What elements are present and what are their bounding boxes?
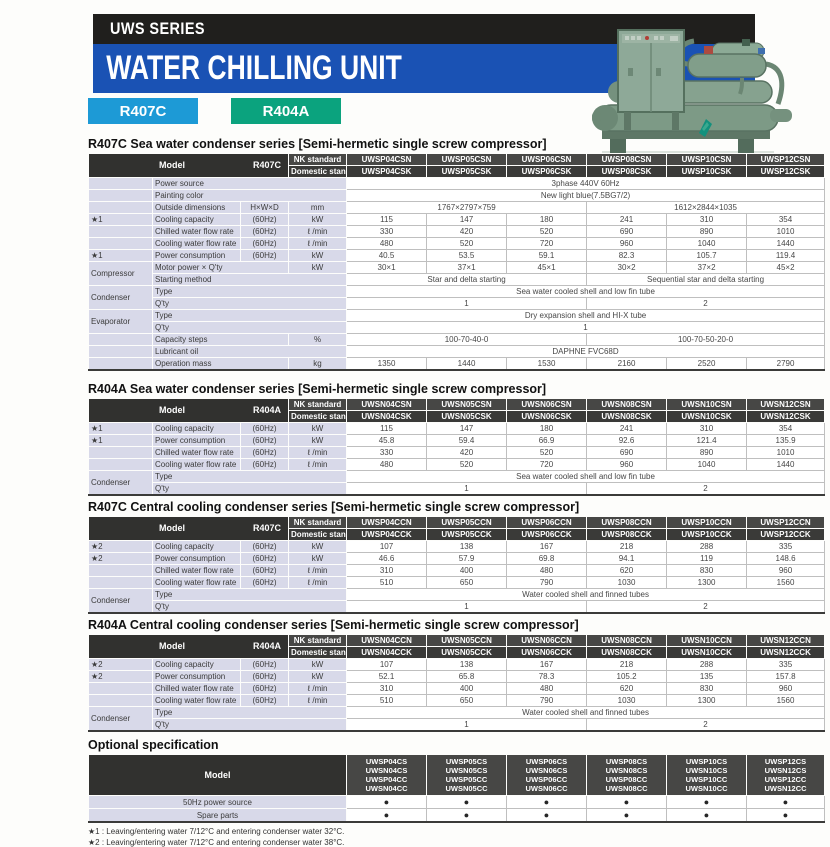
row-sub-cell: (60Hz) <box>241 238 289 250</box>
data-cell: 1440 <box>427 358 507 371</box>
model-label: Model <box>91 642 253 651</box>
data-cell: 1040 <box>667 459 747 471</box>
data-cell: 1560 <box>747 577 825 589</box>
footnotes: ★1 : Leaving/entering water 7/12°C and e… <box>88 827 824 847</box>
model-name-cell: UWSP10CSN <box>667 154 747 166</box>
row-unit-cell: ℓ /min <box>289 565 347 577</box>
model-code: R404A <box>253 642 286 651</box>
model-name-cell: UWSP04CCN <box>347 517 427 529</box>
dot-icon: ● <box>587 796 667 809</box>
row-sub-cell: (60Hz) <box>241 435 289 447</box>
data-cell: 480 <box>507 565 587 577</box>
row-group-cell <box>89 695 153 707</box>
data-cell: Sequential star and delta starting <box>587 274 825 286</box>
model-name-cell: UWSN08CCN <box>587 635 667 647</box>
model-name-cell: UWSP08CCK <box>587 529 667 541</box>
model-label: Model <box>91 524 253 533</box>
row-label-cell: Type <box>153 707 347 719</box>
model-name-cell: UWSP04CSN <box>347 154 427 166</box>
model-code: R404A <box>253 406 286 415</box>
optional-model-name: UWSN08CC <box>587 784 666 793</box>
data-cell: 690 <box>587 447 667 459</box>
data-cell: 180 <box>507 423 587 435</box>
model-name-cell: UWSP12CCN <box>747 517 825 529</box>
row-unit-cell: ℓ /min <box>289 695 347 707</box>
row-group-cell <box>89 565 153 577</box>
model-label: Model <box>91 161 253 170</box>
data-cell: 288 <box>667 541 747 553</box>
row-sub-cell: (60Hz) <box>241 565 289 577</box>
data-cell: 620 <box>587 565 667 577</box>
dot-icon: ● <box>667 796 747 809</box>
data-cell: 69.8 <box>507 553 587 565</box>
optional-model-name: UWSP06CC <box>507 775 586 784</box>
data-cell: 420 <box>427 447 507 459</box>
model-name-cell: UWSN12CCK <box>747 647 825 659</box>
row-label-cell: Q'ty <box>153 601 347 614</box>
model-header-cell: ModelR407C <box>89 154 289 178</box>
model-name-cell: UWSN06CCK <box>507 647 587 659</box>
dot-icon: ● <box>587 809 667 823</box>
spec-content: R407C Sea water condenser series [Semi-h… <box>88 138 824 847</box>
data-cell: 510 <box>347 695 427 707</box>
row-sub-cell: (60Hz) <box>241 577 289 589</box>
row-label-cell: Starting method <box>153 274 347 286</box>
model-name-cell: UWSN04CSK <box>347 411 427 423</box>
model-name-cell: UWSP06CCK <box>507 529 587 541</box>
nk-standard-cell: NK standard <box>289 399 347 411</box>
data-cell: 147 <box>427 214 507 226</box>
data-cell: 218 <box>587 659 667 671</box>
row-group-cell: Compressor <box>89 262 153 286</box>
optional-heading: Optional specification <box>88 739 824 752</box>
data-cell: 115 <box>347 214 427 226</box>
data-cell: Water cooled shell and finned tubes <box>347 589 825 601</box>
row-unit-cell: ℓ /min <box>289 577 347 589</box>
model-name-cell: UWSP04CSK <box>347 166 427 178</box>
model-name-cell: UWSN08CSN <box>587 399 667 411</box>
optional-model-name: UWSP12CC <box>747 775 824 784</box>
optional-row-label: 50Hz power source <box>89 796 347 809</box>
data-cell: 241 <box>587 214 667 226</box>
model-name-cell: UWSP06CCN <box>507 517 587 529</box>
teal-corner-mark <box>697 117 713 137</box>
optional-model-name: UWSN12CC <box>747 784 824 793</box>
row-sub-cell: (60Hz) <box>241 553 289 565</box>
data-cell: 37×2 <box>667 262 747 274</box>
data-cell: 335 <box>747 659 825 671</box>
model-name-cell: UWSN04CCK <box>347 647 427 659</box>
data-cell: 420 <box>427 226 507 238</box>
data-cell: 30×1 <box>347 262 427 274</box>
refrigerant-badge-R407C: R407C <box>88 98 198 124</box>
data-cell: 119 <box>667 553 747 565</box>
row-unit-cell: kW <box>289 262 347 274</box>
row-group-cell: ★2 <box>89 553 153 565</box>
model-name-cell: UWSP05CCN <box>427 517 507 529</box>
optional-row-label: Spare parts <box>89 809 347 823</box>
data-cell: 1440 <box>747 459 825 471</box>
model-code: R407C <box>253 524 286 533</box>
section-title: R404A Central cooling condenser series [… <box>88 619 824 632</box>
model-name-cell: UWSP08CSK <box>587 166 667 178</box>
row-sub-cell: (60Hz) <box>241 447 289 459</box>
dot-icon: ● <box>427 809 507 823</box>
series-label: UWS SERIES <box>93 19 205 39</box>
row-unit-cell: kW <box>289 423 347 435</box>
data-cell: 135 <box>667 671 747 683</box>
optional-model-name: UWSN05CC <box>427 784 506 793</box>
row-unit-cell: ℓ /min <box>289 447 347 459</box>
section-title: R404A Sea water condenser series [Semi-h… <box>88 383 824 396</box>
optional-model-list-cell: UWSP12CSUWSN12CSUWSP12CCUWSN12CC <box>747 755 825 796</box>
data-cell: 354 <box>747 214 825 226</box>
model-name-cell: UWSN10CSN <box>667 399 747 411</box>
data-cell: 354 <box>747 423 825 435</box>
row-sub-cell: H×W×D <box>241 202 289 214</box>
row-label-cell: Cooling water flow rate <box>153 238 241 250</box>
model-name-cell: UWSP10CCK <box>667 529 747 541</box>
optional-model-name: UWSN06CS <box>507 766 586 775</box>
row-unit-cell: mm <box>289 202 347 214</box>
data-cell: 830 <box>667 565 747 577</box>
spec-table: ModelR407CNK standardUWSP04CCNUWSP05CCNU… <box>88 516 825 614</box>
data-cell: 790 <box>507 695 587 707</box>
row-group-cell: ★1 <box>89 214 153 226</box>
model-name-cell: UWSP12CSN <box>747 154 825 166</box>
model-name-cell: UWSN10CCK <box>667 647 747 659</box>
model-name-cell: UWSP05CCK <box>427 529 507 541</box>
row-sub-cell: (60Hz) <box>241 250 289 262</box>
model-name-cell: UWSN12CSK <box>747 411 825 423</box>
catalog-page: { "header": { "series_label": "UWS SERIE… <box>0 0 830 788</box>
data-cell: 1612×2844×1035 <box>587 202 825 214</box>
row-label-cell: Power source <box>153 178 347 190</box>
row-group-cell: ★2 <box>89 541 153 553</box>
model-name-cell: UWSN06CSK <box>507 411 587 423</box>
data-cell: 94.1 <box>587 553 667 565</box>
data-cell: 100-70-50-20-0 <box>587 334 825 346</box>
data-cell: 167 <box>507 659 587 671</box>
optional-model-name: UWSN04CS <box>347 766 426 775</box>
model-name-cell: UWSN04CCN <box>347 635 427 647</box>
data-cell: 1010 <box>747 447 825 459</box>
row-sub-cell: (60Hz) <box>241 671 289 683</box>
row-label-cell: Chilled water flow rate <box>153 683 241 695</box>
spec-table: ModelR404ANK standardUWSN04CCNUWSN05CCNU… <box>88 634 825 732</box>
data-cell: 82.3 <box>587 250 667 262</box>
optional-model-name: UWSN12CS <box>747 766 824 775</box>
optional-model-name: UWSP12CS <box>747 757 824 766</box>
optional-model-list-cell: UWSP06CSUWSN06CSUWSP06CCUWSN06CC <box>507 755 587 796</box>
row-group-cell <box>89 459 153 471</box>
data-cell: 218 <box>587 541 667 553</box>
data-cell: 510 <box>347 577 427 589</box>
data-cell: 1767×2797×759 <box>347 202 587 214</box>
data-cell: 46.6 <box>347 553 427 565</box>
data-cell: 65.8 <box>427 671 507 683</box>
data-cell: 1300 <box>667 577 747 589</box>
data-cell: 960 <box>587 238 667 250</box>
data-cell: 157.8 <box>747 671 825 683</box>
row-label-cell: Motor power × Q'ty <box>153 262 289 274</box>
data-cell: 107 <box>347 541 427 553</box>
data-cell: 2160 <box>587 358 667 371</box>
dot-icon: ● <box>347 796 427 809</box>
optional-model-header-cell: Model <box>89 755 347 796</box>
data-cell: 53.5 <box>427 250 507 262</box>
model-name-cell: UWSN10CCN <box>667 635 747 647</box>
row-group-cell <box>89 178 153 190</box>
optional-model-name: UWSP10CC <box>667 775 746 784</box>
row-label-cell: Lubricant oil <box>153 346 347 358</box>
data-cell: 52.1 <box>347 671 427 683</box>
row-group-cell: Condenser <box>89 589 153 614</box>
row-group-cell: Condenser <box>89 471 153 496</box>
row-sub-cell: (60Hz) <box>241 683 289 695</box>
row-label-cell: Capacity steps <box>153 334 289 346</box>
data-cell: 37×1 <box>427 262 507 274</box>
nk-standard-cell: NK standard <box>289 517 347 529</box>
data-cell: 30×2 <box>587 262 667 274</box>
data-cell: 620 <box>587 683 667 695</box>
row-unit-cell: kW <box>289 435 347 447</box>
section-title: R407C Sea water condenser series [Semi-h… <box>88 138 824 151</box>
row-label-cell: Q'ty <box>153 719 347 732</box>
data-cell: 1030 <box>587 695 667 707</box>
data-cell: 480 <box>347 238 427 250</box>
row-label-cell: Chilled water flow rate <box>153 565 241 577</box>
row-group-cell <box>89 202 153 214</box>
optional-model-name: UWSP06CS <box>507 757 586 766</box>
dot-icon: ● <box>747 809 825 823</box>
data-cell: 960 <box>587 459 667 471</box>
data-cell: 105.7 <box>667 250 747 262</box>
row-label-cell: Power consumption <box>153 435 241 447</box>
model-label: Model <box>91 406 253 415</box>
data-cell: 520 <box>427 459 507 471</box>
row-label-cell: Power consumption <box>153 553 241 565</box>
optional-model-name: UWSP08CS <box>587 757 666 766</box>
row-unit-cell: kW <box>289 250 347 262</box>
nk-standard-cell: NK standard <box>289 154 347 166</box>
row-label-cell: Outside dimensions <box>153 202 241 214</box>
data-cell: 400 <box>427 683 507 695</box>
data-cell: Sea water cooled shell and low fin tube <box>347 286 825 298</box>
row-group-cell <box>89 226 153 238</box>
data-cell: 40.5 <box>347 250 427 262</box>
section-title: R407C Central cooling condenser series [… <box>88 501 824 514</box>
row-group-cell <box>89 238 153 250</box>
row-unit-cell: ℓ /min <box>289 238 347 250</box>
row-unit-cell: kW <box>289 659 347 671</box>
dot-icon: ● <box>747 796 825 809</box>
row-group-cell <box>89 358 153 371</box>
data-cell: 2520 <box>667 358 747 371</box>
data-cell: 1010 <box>747 226 825 238</box>
model-header-cell: ModelR407C <box>89 517 289 541</box>
row-sub-cell: (60Hz) <box>241 541 289 553</box>
data-cell: 100-70-40-0 <box>347 334 587 346</box>
data-cell: 650 <box>427 577 507 589</box>
row-group-cell: ★1 <box>89 423 153 435</box>
data-cell: 720 <box>507 459 587 471</box>
row-unit-cell: kW <box>289 553 347 565</box>
spec-table: ModelR407CNK standardUWSP04CSNUWSP05CSNU… <box>88 153 825 371</box>
data-cell: 2 <box>587 601 825 614</box>
model-name-cell: UWSP08CCN <box>587 517 667 529</box>
row-label-cell: Type <box>153 589 347 601</box>
model-name-cell: UWSP08CSN <box>587 154 667 166</box>
model-name-cell: UWSP12CCK <box>747 529 825 541</box>
model-name-cell: UWSN06CCN <box>507 635 587 647</box>
model-name-cell: UWSP10CSK <box>667 166 747 178</box>
model-header-cell: ModelR404A <box>89 635 289 659</box>
data-cell: 890 <box>667 226 747 238</box>
data-cell: 92.6 <box>587 435 667 447</box>
model-name-cell: UWSP05CSK <box>427 166 507 178</box>
model-code: R407C <box>253 161 286 170</box>
optional-model-name: UWSP04CC <box>347 775 426 784</box>
row-unit-cell: kW <box>289 214 347 226</box>
data-cell: 480 <box>347 459 427 471</box>
data-cell: 480 <box>507 683 587 695</box>
data-cell: 890 <box>667 447 747 459</box>
data-cell: 960 <box>747 683 825 695</box>
data-cell: 66.9 <box>507 435 587 447</box>
data-cell: 1350 <box>347 358 427 371</box>
model-name-cell: UWSN08CCK <box>587 647 667 659</box>
row-sub-cell: (60Hz) <box>241 423 289 435</box>
row-group-cell <box>89 346 153 358</box>
data-cell: 147 <box>427 423 507 435</box>
data-cell: 1 <box>347 322 825 334</box>
row-label-cell: Q'ty <box>153 298 347 310</box>
row-label-cell: Cooling water flow rate <box>153 459 241 471</box>
row-label-cell: Chilled water flow rate <box>153 226 241 238</box>
model-name-cell: UWSN12CSN <box>747 399 825 411</box>
model-name-cell: UWSP05CSN <box>427 154 507 166</box>
optional-model-name: UWSP04CS <box>347 757 426 766</box>
data-cell: 690 <box>587 226 667 238</box>
data-cell: 335 <box>747 541 825 553</box>
optional-model-name: UWSN05CS <box>427 766 506 775</box>
row-sub-cell: (60Hz) <box>241 659 289 671</box>
optional-model-name: UWSP05CS <box>427 757 506 766</box>
data-cell: 135.9 <box>747 435 825 447</box>
data-cell: 520 <box>507 226 587 238</box>
data-cell: 105.2 <box>587 671 667 683</box>
row-label-cell: Cooling capacity <box>153 541 241 553</box>
domestic-standard-cell: Domestic standard <box>289 529 347 541</box>
data-cell: 1 <box>347 298 587 310</box>
optional-model-name: UWSP05CC <box>427 775 506 784</box>
dot-icon: ● <box>427 796 507 809</box>
spec-table: ModelR404ANK standardUWSN04CSNUWSN05CSNU… <box>88 398 825 496</box>
row-group-cell: Condenser <box>89 707 153 732</box>
data-cell: 1530 <box>507 358 587 371</box>
row-sub-cell: (60Hz) <box>241 214 289 226</box>
data-cell: 121.4 <box>667 435 747 447</box>
row-label-cell: Power consumption <box>153 250 241 262</box>
row-unit-cell: ℓ /min <box>289 459 347 471</box>
data-cell: 720 <box>507 238 587 250</box>
data-cell: 330 <box>347 447 427 459</box>
model-name-cell: UWSN05CCK <box>427 647 507 659</box>
data-cell: 1 <box>347 483 587 496</box>
model-name-cell: UWSN05CSN <box>427 399 507 411</box>
dot-icon: ● <box>667 809 747 823</box>
model-name-cell: UWSP06CSK <box>507 166 587 178</box>
data-cell: 830 <box>667 683 747 695</box>
row-label-cell: Cooling capacity <box>153 214 241 226</box>
row-label-cell: Cooling capacity <box>153 423 241 435</box>
data-cell: 790 <box>507 577 587 589</box>
row-group-cell: Evaporator <box>89 310 153 334</box>
optional-model-list-cell: UWSP05CSUWSN05CSUWSP05CCUWSN05CC <box>427 755 507 796</box>
data-cell: 2 <box>587 298 825 310</box>
data-cell: 960 <box>747 565 825 577</box>
data-cell: Water cooled shell and finned tubes <box>347 707 825 719</box>
data-cell: 2 <box>587 719 825 732</box>
model-name-cell: UWSN06CSN <box>507 399 587 411</box>
row-sub-cell: (60Hz) <box>241 226 289 238</box>
data-cell: 310 <box>347 683 427 695</box>
domestic-standard-cell: Domestic standard <box>289 166 347 178</box>
optional-model-list-cell: UWSP08CSUWSN08CSUWSP08CCUWSN08CC <box>587 755 667 796</box>
data-cell: 330 <box>347 226 427 238</box>
model-name-cell: UWSP10CCN <box>667 517 747 529</box>
data-cell: 59.1 <box>507 250 587 262</box>
model-name-cell: UWSN10CSK <box>667 411 747 423</box>
data-cell: 78.3 <box>507 671 587 683</box>
page-title: WATER CHILLING UNIT <box>93 49 402 88</box>
data-cell: 180 <box>507 214 587 226</box>
row-group-cell <box>89 683 153 695</box>
data-cell: 2 <box>587 483 825 496</box>
domestic-standard-cell: Domestic standard <box>289 411 347 423</box>
model-name-cell: UWSN05CCN <box>427 635 507 647</box>
row-label-cell: Cooling water flow rate <box>153 695 241 707</box>
row-unit-cell: % <box>289 334 347 346</box>
model-name-cell: UWSN08CSK <box>587 411 667 423</box>
data-cell: Dry expansion shell and HI-X tube <box>347 310 825 322</box>
data-cell: DAPHNE FVC68D <box>347 346 825 358</box>
footnote: ★2 : Leaving/entering water 7/12°C and e… <box>88 838 824 847</box>
optional-model-list-cell: UWSP10CSUWSN10CSUWSP10CCUWSN10CC <box>667 755 747 796</box>
data-cell: 310 <box>347 565 427 577</box>
row-group-cell <box>89 447 153 459</box>
dot-icon: ● <box>507 809 587 823</box>
model-header-cell: ModelR404A <box>89 399 289 423</box>
data-cell: 310 <box>667 423 747 435</box>
dot-icon: ● <box>507 796 587 809</box>
optional-model-name: UWSN10CC <box>667 784 746 793</box>
row-label-cell: Cooling water flow rate <box>153 577 241 589</box>
row-label-cell: Painting color <box>153 190 347 202</box>
row-label-cell: Chilled water flow rate <box>153 447 241 459</box>
model-name-cell: UWSP06CSN <box>507 154 587 166</box>
optional-model-name: UWSN10CS <box>667 766 746 775</box>
row-label-cell: Q'ty <box>153 322 347 334</box>
row-group-cell: Condenser <box>89 286 153 310</box>
data-cell: 400 <box>427 565 507 577</box>
data-cell: 167 <box>507 541 587 553</box>
row-unit-cell: kW <box>289 541 347 553</box>
data-cell: 107 <box>347 659 427 671</box>
model-name-cell: UWSP04CCK <box>347 529 427 541</box>
data-cell: 45×2 <box>747 262 825 274</box>
